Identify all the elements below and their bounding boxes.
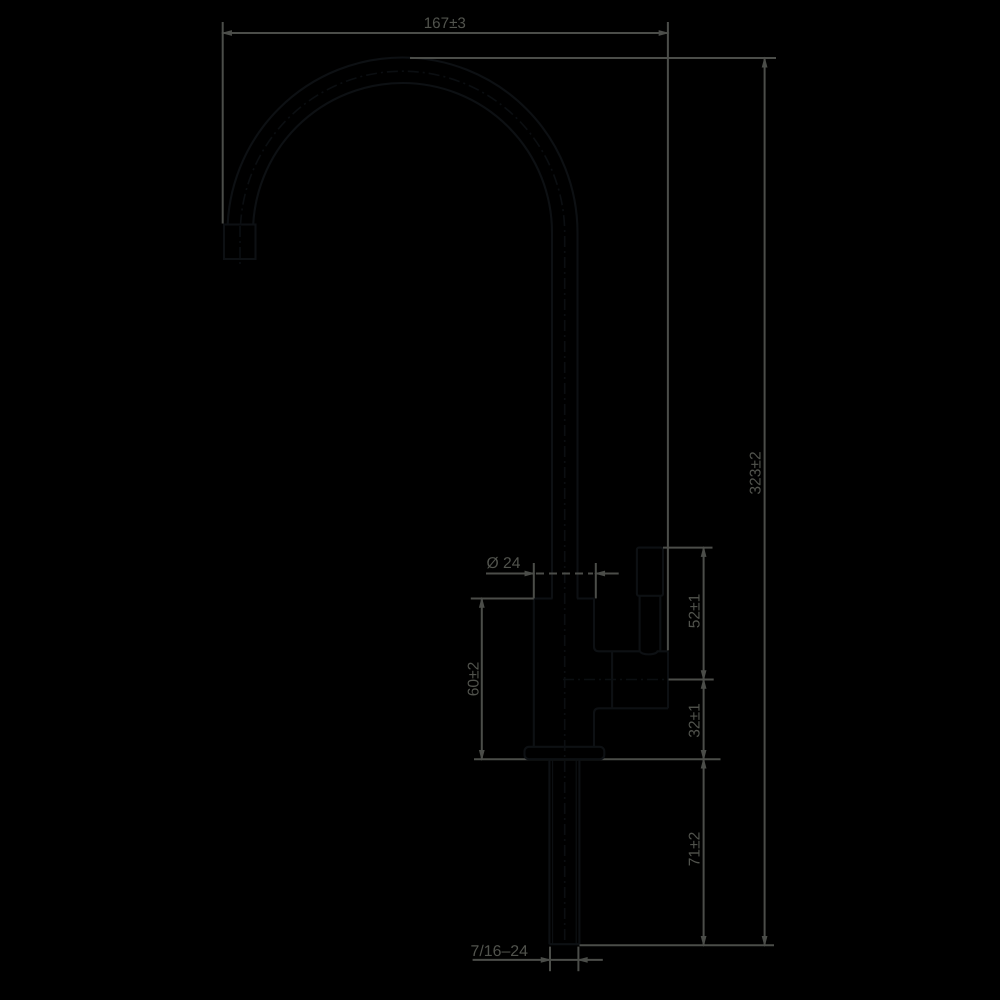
svg-text:7/16–24: 7/16–24 [471, 943, 529, 960]
svg-text:323±2: 323±2 [748, 451, 765, 494]
svg-text:71±2: 71±2 [687, 832, 704, 867]
svg-text:167±3: 167±3 [424, 15, 466, 32]
svg-text:32±1: 32±1 [687, 703, 704, 738]
svg-text:52±1: 52±1 [687, 594, 704, 629]
svg-text:Ø 24: Ø 24 [487, 555, 521, 572]
svg-text:60±2: 60±2 [466, 662, 483, 697]
